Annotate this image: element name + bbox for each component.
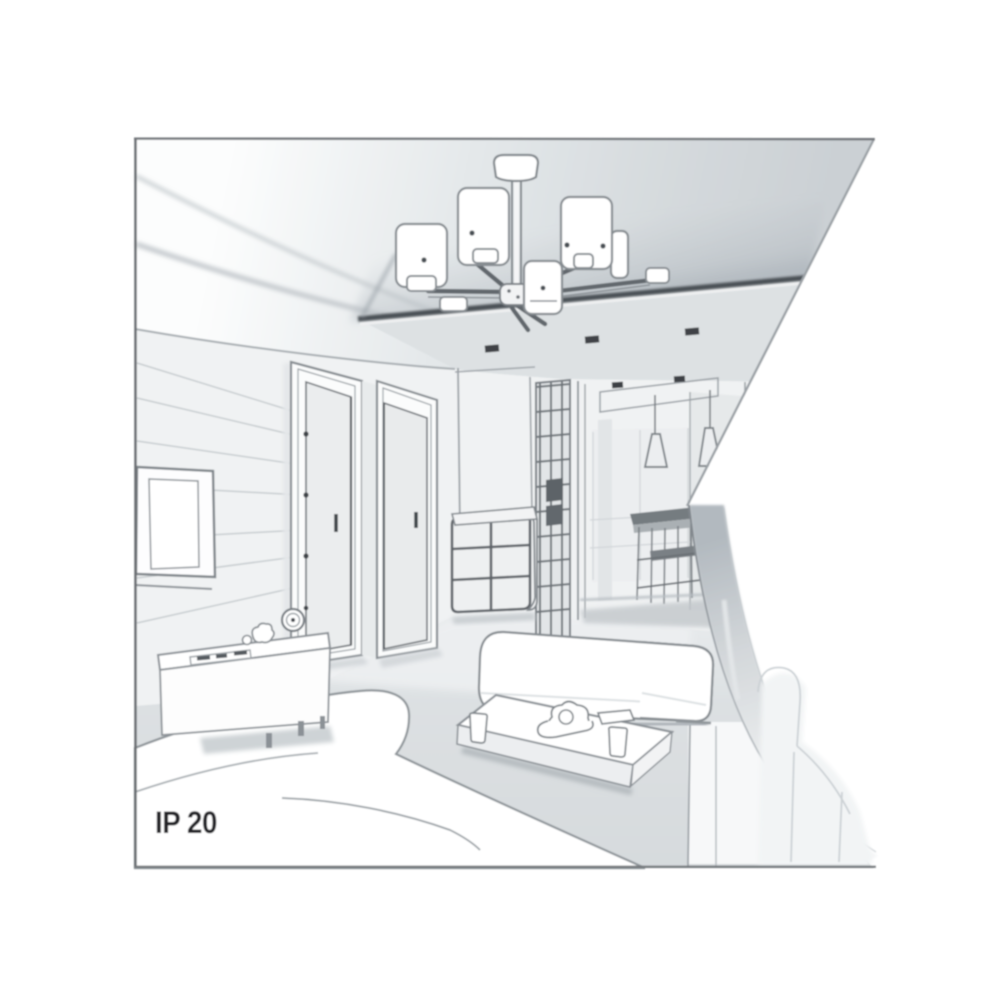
svg-text:IP 20: IP 20: [155, 804, 217, 840]
